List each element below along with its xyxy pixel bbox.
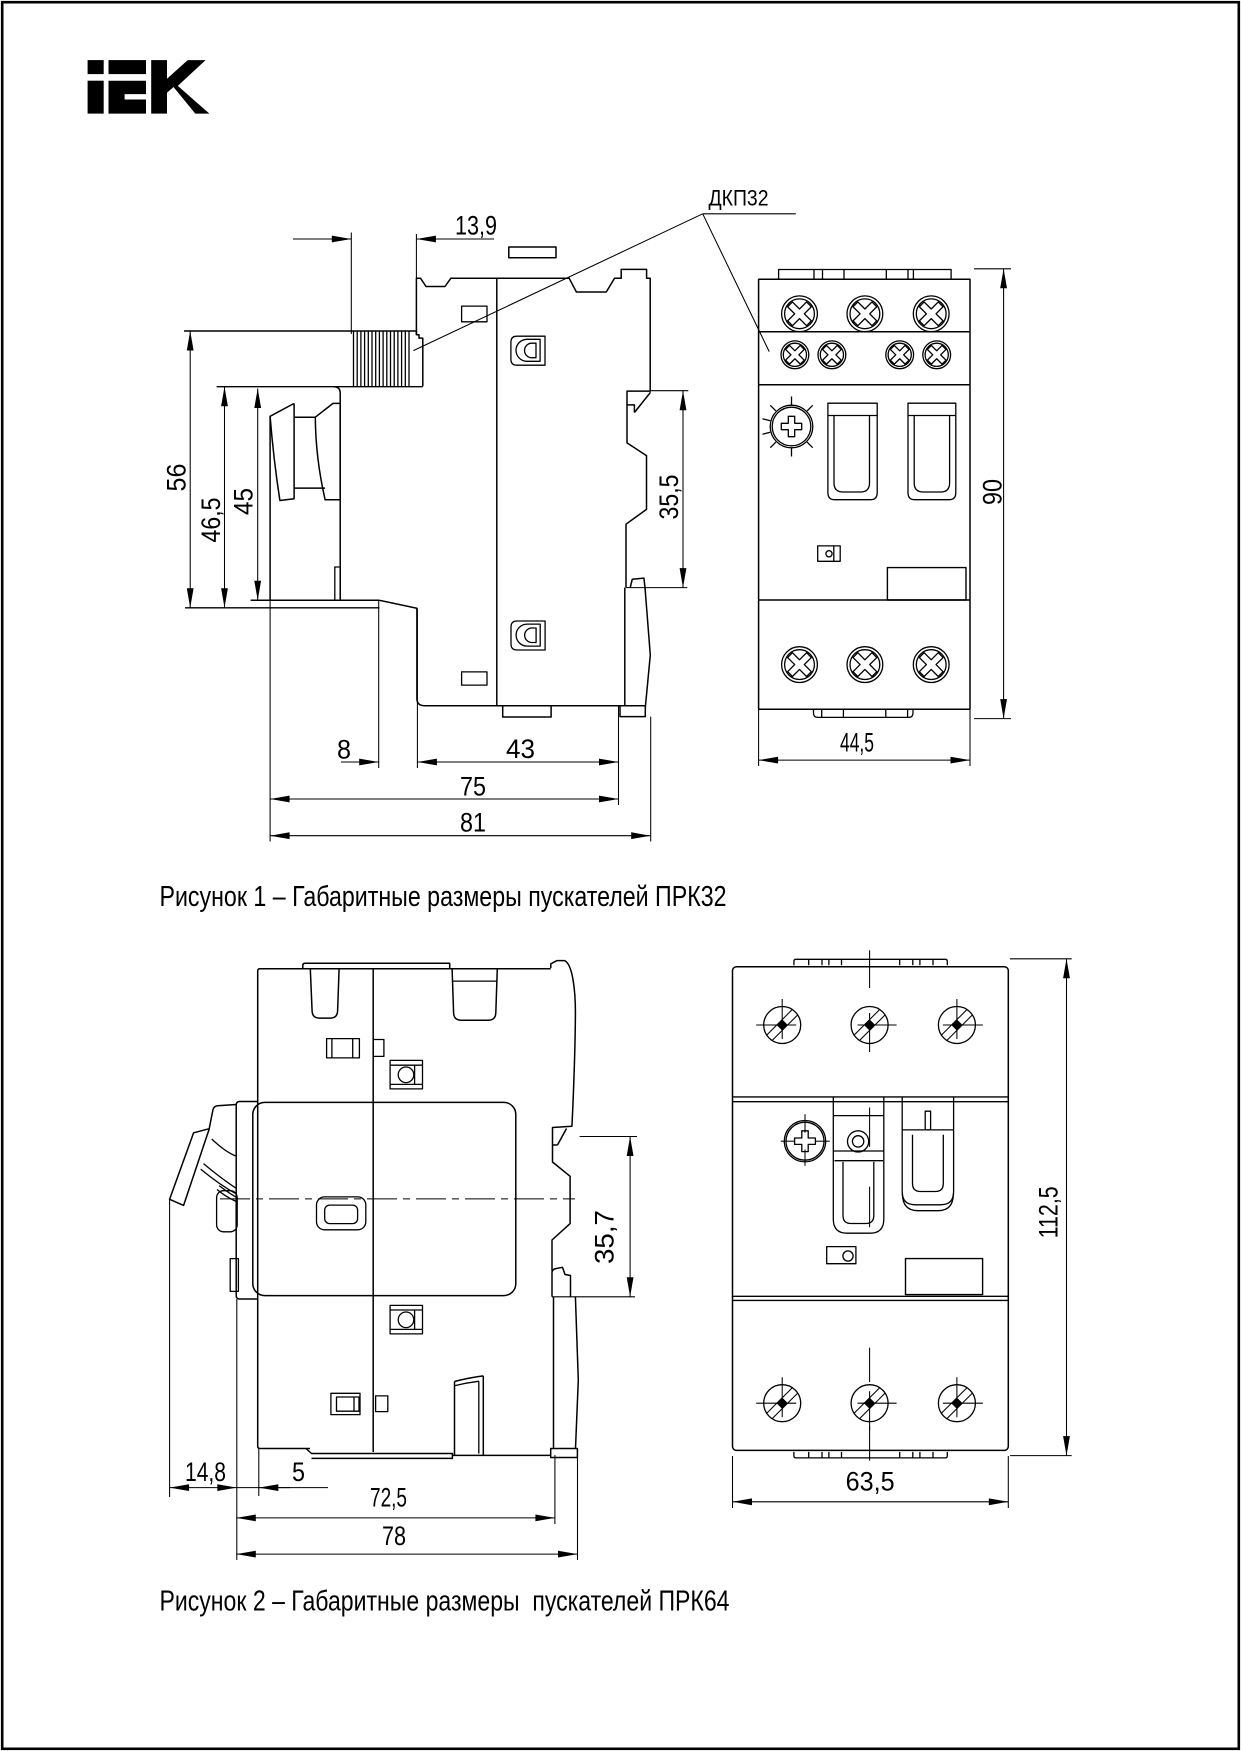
svg-text:5: 5 xyxy=(292,1457,305,1487)
svg-text:43: 43 xyxy=(506,734,535,764)
svg-text:8: 8 xyxy=(337,735,351,765)
svg-text:45: 45 xyxy=(229,488,259,515)
svg-text:46,5: 46,5 xyxy=(196,498,226,543)
svg-text:Рисунок 1 – Габаритные размеры: Рисунок 1 – Габаритные размеры пускателе… xyxy=(160,881,727,913)
svg-text:112,5: 112,5 xyxy=(1034,1186,1064,1238)
svg-text:78: 78 xyxy=(382,1521,406,1551)
svg-text:35,7: 35,7 xyxy=(590,1210,620,1264)
svg-text:72,5: 72,5 xyxy=(370,1483,407,1513)
svg-text:63,5: 63,5 xyxy=(846,1467,895,1497)
svg-text:ДКП32: ДКП32 xyxy=(709,186,769,211)
svg-text:75: 75 xyxy=(460,772,486,802)
svg-text:14,8: 14,8 xyxy=(185,1457,226,1487)
svg-text:81: 81 xyxy=(460,808,486,838)
svg-text:90: 90 xyxy=(978,479,1008,505)
svg-text:35,5: 35,5 xyxy=(654,475,684,520)
svg-text:44,5: 44,5 xyxy=(840,728,874,758)
svg-text:13,9: 13,9 xyxy=(455,211,497,241)
svg-text:Рисунок 2 – Габаритные размеры: Рисунок 2 – Габаритные размеры пускателе… xyxy=(160,1586,730,1618)
svg-text:56: 56 xyxy=(162,464,192,492)
